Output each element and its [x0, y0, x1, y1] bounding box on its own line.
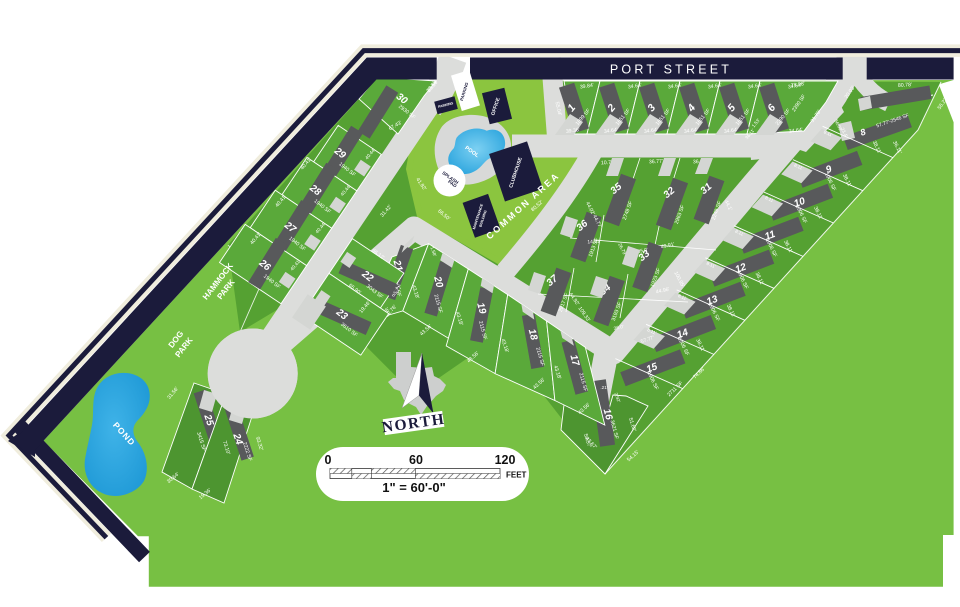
svg-text:1" = 60'-0": 1" = 60'-0" — [382, 480, 445, 495]
svg-text:14.91': 14.91' — [587, 239, 600, 246]
svg-text:0: 0 — [325, 453, 332, 467]
svg-text:80.78': 80.78' — [898, 82, 912, 89]
svg-text:.21': .21' — [600, 385, 607, 390]
svg-text:FEET: FEET — [506, 471, 527, 480]
svg-text:60: 60 — [409, 453, 423, 467]
svg-text:120: 120 — [495, 453, 516, 467]
svg-text:PORT STREET: PORT STREET — [610, 63, 732, 77]
svg-text:36.77': 36.77' — [649, 159, 663, 166]
